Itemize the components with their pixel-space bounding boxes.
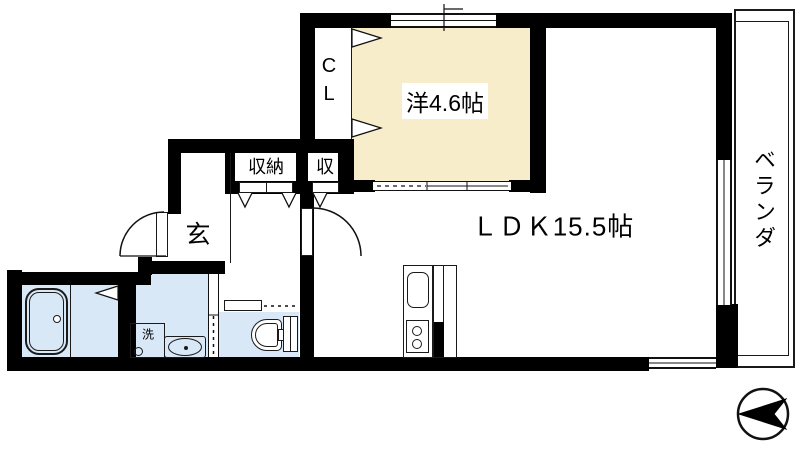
bedroom-label: 洋4.6帖 [402,83,488,119]
wall-bedroom-right [530,27,546,193]
ldk-label: ＬＤＫ15.5帖 [472,207,635,244]
window-bedroom-top [391,13,496,28]
window-ldk-bottom [649,357,716,369]
kitchen-sink [407,272,429,308]
wall-bedroom-bottom-left [348,180,375,192]
north-arrow-icon [739,399,786,429]
wall-right-upper [716,13,732,161]
wall-genkan-bottom [140,261,225,274]
wall-top-right [496,13,732,28]
storage-small-door [312,182,339,193]
entrance-door-leaf [156,212,168,257]
toilet-seat-tab [278,329,284,341]
wall-entry-upper [168,139,181,214]
toilet-tank-line [290,317,291,351]
toilet-bowl-inner [255,323,278,347]
entrance-label: 玄 [185,215,210,251]
wall-bath-top [7,272,151,285]
floor-plan: 洋4.6帖 ＬＤＫ15.5帖 ベランダ 玄 CL 収納 収 洗 [0,0,800,450]
stove-burner-bottom [412,339,422,349]
wall-bottom [7,357,649,371]
cl-door-line [351,27,352,139]
sink-drain-dot [184,346,188,350]
ldk-door-swing-arc [313,208,361,256]
storage-chevron-3 [313,193,327,207]
ldk-door-leaf [301,208,313,256]
bath-floor-divider [70,285,71,357]
washer-label: 洗 [142,326,154,343]
washroom-accordion-door [208,274,219,357]
closet-cl-label: CL [322,52,337,108]
genkan-step-line [230,153,231,263]
kitchen-counter [433,265,457,358]
storage-small-label: 収 [316,153,334,179]
window-ldk-veranda [716,160,732,305]
storage-large-door-divider [266,182,267,193]
storage-large-label: 収納 [248,153,284,179]
bathtub-faucet-dot [53,315,61,323]
wall-cl-left [300,13,315,153]
bedroom-sliding-door [373,181,511,191]
kitchen-counter-divider [443,266,444,322]
compass-circle [738,389,788,439]
wall-bedroom-bottom-right [509,180,546,192]
toilet-sliding-door [224,300,262,311]
storage-chevron-1 [238,193,252,207]
washing-machine-dial [134,347,143,356]
wall-hall-top [168,139,354,153]
veranda-label: ベランダ [747,148,779,252]
wall-left-outer [7,270,22,371]
wall-right-lower [716,304,738,368]
storage-chevron-2 [282,193,296,207]
stove-burner-top [412,326,422,336]
